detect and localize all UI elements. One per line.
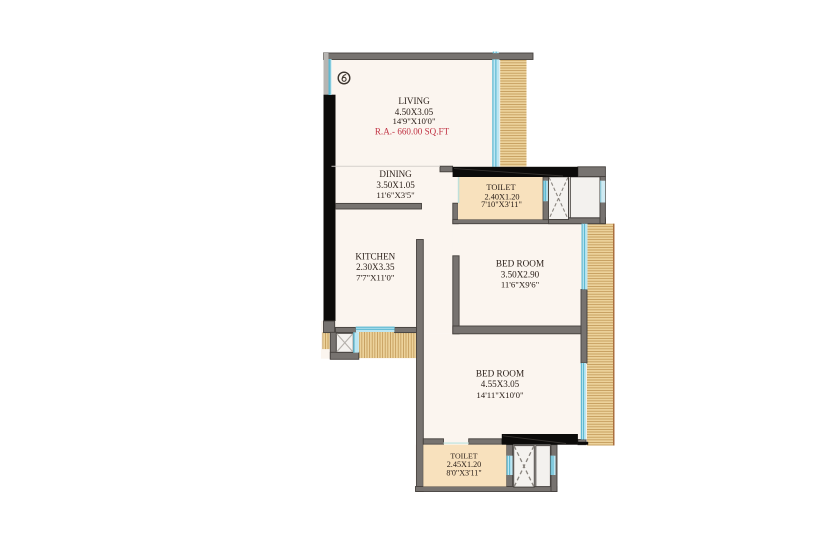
svg-text:7'10"X3'11": 7'10"X3'11"	[481, 200, 522, 209]
svg-text:14'11"X10'0": 14'11"X10'0"	[476, 390, 524, 400]
svg-text:2.30X3.35: 2.30X3.35	[356, 262, 395, 272]
svg-text:11'6"X9'6": 11'6"X9'6"	[501, 279, 540, 289]
svg-text:KITCHEN: KITCHEN	[355, 252, 395, 262]
svg-text:11'6"X3'5": 11'6"X3'5"	[376, 190, 415, 200]
svg-text:R.A.- 660.00 SQ.FT: R.A.- 660.00 SQ.FT	[375, 127, 450, 137]
svg-text:7'7"X11'0": 7'7"X11'0"	[356, 273, 395, 283]
svg-text:4.55X3.05: 4.55X3.05	[481, 379, 520, 389]
svg-text:BED ROOM: BED ROOM	[476, 369, 524, 379]
svg-text:3.50X2.90: 3.50X2.90	[501, 270, 540, 280]
svg-text:BED ROOM: BED ROOM	[496, 259, 544, 269]
svg-text:14'9"X10'0": 14'9"X10'0"	[392, 116, 436, 126]
svg-text:TOILET: TOILET	[486, 183, 515, 192]
svg-text:DINING: DINING	[379, 169, 412, 179]
svg-text:3.50X1.05: 3.50X1.05	[376, 180, 415, 190]
svg-text:LIVING: LIVING	[398, 96, 430, 106]
svg-text:8'0"X3'11": 8'0"X3'11"	[446, 468, 481, 477]
